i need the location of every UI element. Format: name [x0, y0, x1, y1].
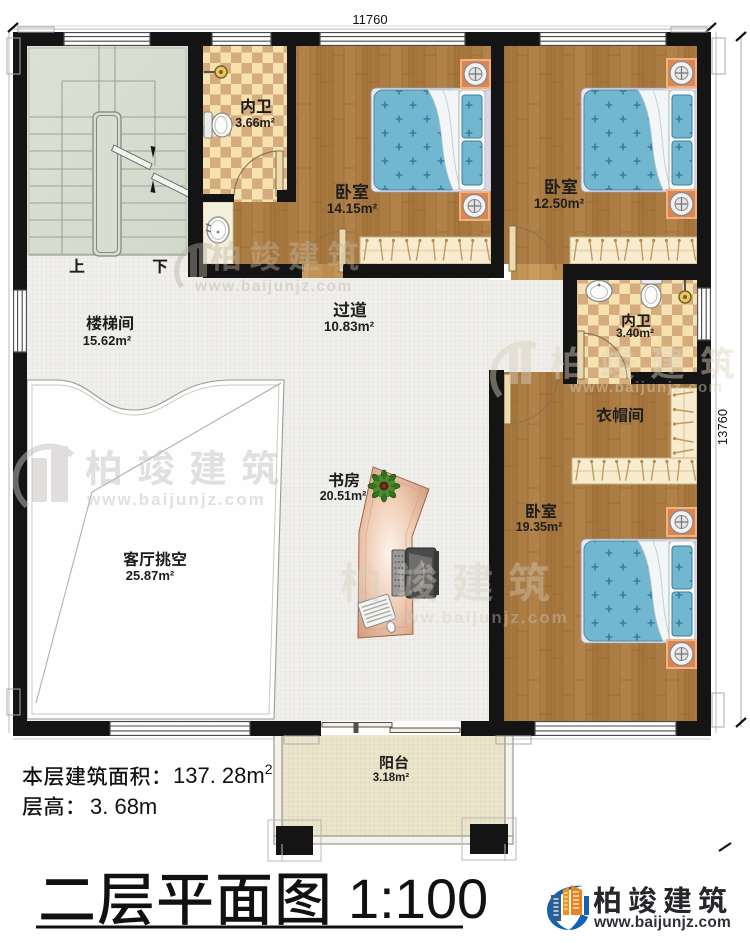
svg-text:20.51m²: 20.51m² [320, 489, 367, 503]
svg-text:3.18m²: 3.18m² [373, 772, 410, 784]
svg-text:14.15m²: 14.15m² [327, 201, 378, 216]
svg-text:10.83m²: 10.83m² [324, 319, 375, 334]
svg-text:19.35m²: 19.35m² [516, 520, 563, 534]
svg-text:3. 68m: 3. 68m [90, 794, 157, 819]
svg-text:3.66m²: 3.66m² [235, 116, 275, 130]
svg-text:3.40m²: 3.40m² [616, 326, 654, 340]
svg-text:www.baijunjz.com: www.baijunjz.com [593, 914, 731, 931]
svg-text:www.baijunjz.com: www.baijunjz.com [86, 490, 266, 509]
svg-text:12.50m²: 12.50m² [534, 196, 585, 211]
svg-text:www.baijunjz.com: www.baijunjz.com [389, 608, 569, 627]
svg-text:www.baijunjz.com: www.baijunjz.com [194, 278, 353, 295]
svg-text:11760: 11760 [352, 12, 387, 27]
svg-text:15.62m²: 15.62m² [83, 333, 132, 348]
svg-text:137. 28m2: 137. 28m2 [173, 761, 273, 788]
svg-text:1:100: 1:100 [348, 867, 488, 930]
svg-text:www.baijunjz.com: www.baijunjz.com [569, 379, 723, 396]
svg-text:25.87m²: 25.87m² [126, 568, 175, 583]
svg-text:13760: 13760 [715, 409, 730, 445]
